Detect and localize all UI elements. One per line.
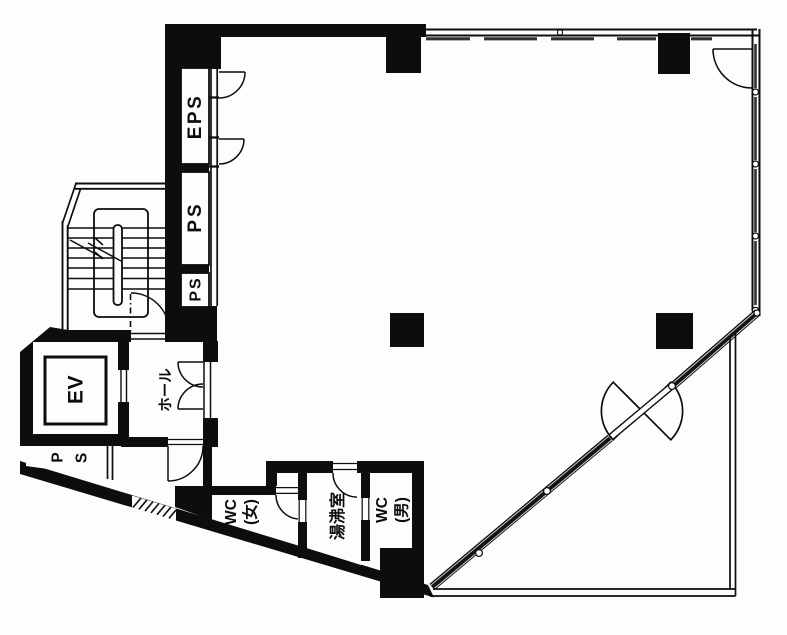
svg-text:PS: PS bbox=[185, 201, 206, 232]
svg-text:P: P bbox=[50, 452, 67, 462]
svg-text:EPS: EPS bbox=[185, 94, 206, 140]
svg-text:ホール: ホール bbox=[158, 368, 175, 412]
svg-text:S: S bbox=[74, 453, 91, 463]
svg-text:EV: EV bbox=[65, 375, 88, 404]
svg-text:湯沸室: 湯沸室 bbox=[328, 492, 347, 540]
svg-text:PS: PS bbox=[188, 276, 205, 301]
